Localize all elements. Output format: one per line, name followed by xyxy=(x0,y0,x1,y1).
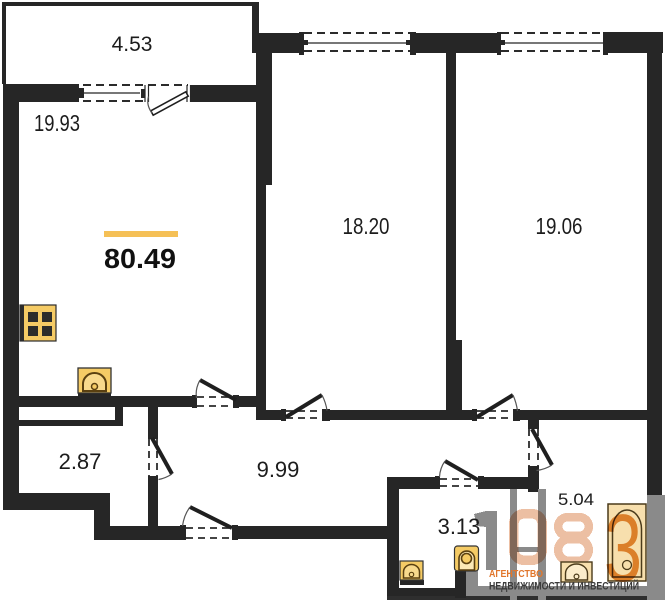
svg-text:НЕДВИЖИМОСТИ И ИНВЕСТИЦИЙ: НЕДВИЖИМОСТИ И ИНВЕСТИЦИЙ xyxy=(489,580,639,593)
svg-text:5.04: 5.04 xyxy=(558,490,594,509)
svg-text:АГЕНТСТВО: АГЕНТСТВО xyxy=(489,569,543,580)
svg-text:2.87: 2.87 xyxy=(59,449,102,474)
svg-text:19.93: 19.93 xyxy=(34,110,80,136)
svg-text:19.06: 19.06 xyxy=(536,213,583,239)
svg-text:4.53: 4.53 xyxy=(112,33,153,56)
svg-text:9.99: 9.99 xyxy=(257,457,300,482)
svg-text:18.20: 18.20 xyxy=(343,213,390,239)
svg-text:3.13: 3.13 xyxy=(438,514,481,539)
svg-text:80.49: 80.49 xyxy=(104,243,176,274)
